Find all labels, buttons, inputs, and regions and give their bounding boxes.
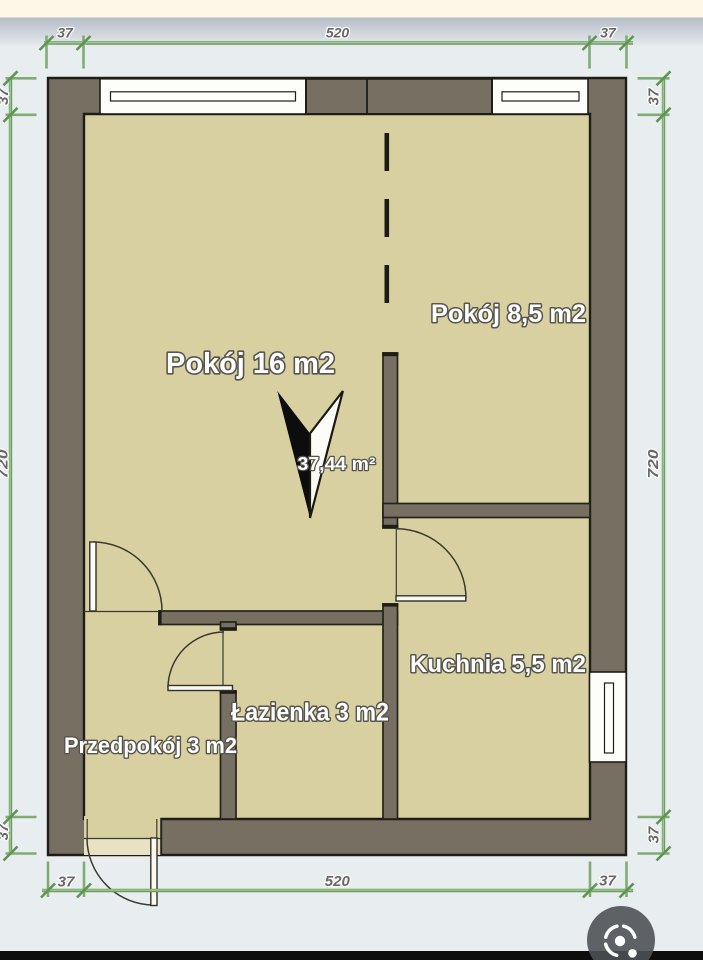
svg-text:Pokój 16 m2: Pokój 16 m2 xyxy=(166,348,335,380)
svg-text:37: 37 xyxy=(600,25,617,41)
svg-text:37: 37 xyxy=(646,88,663,105)
svg-text:37: 37 xyxy=(0,823,12,840)
svg-text:520: 520 xyxy=(325,873,351,890)
svg-text:720: 720 xyxy=(645,449,662,479)
svg-text:37: 37 xyxy=(599,873,616,890)
svg-text:720: 720 xyxy=(0,449,11,479)
svg-text:Kuchnia 5,5 m2: Kuchnia 5,5 m2 xyxy=(410,651,586,678)
svg-text:37: 37 xyxy=(646,826,663,843)
svg-text:Pokój 8,5 m2: Pokój 8,5 m2 xyxy=(431,300,586,328)
svg-text:37: 37 xyxy=(57,25,74,41)
svg-text:Przedpokój 3 m2: Przedpokój 3 m2 xyxy=(64,733,237,758)
svg-text:37,44 m²: 37,44 m² xyxy=(298,454,376,474)
svg-text:37: 37 xyxy=(58,873,75,890)
svg-text:Łazienka 3 m2: Łazienka 3 m2 xyxy=(231,699,389,727)
svg-text:37: 37 xyxy=(0,88,12,105)
svg-text:520: 520 xyxy=(326,25,350,41)
